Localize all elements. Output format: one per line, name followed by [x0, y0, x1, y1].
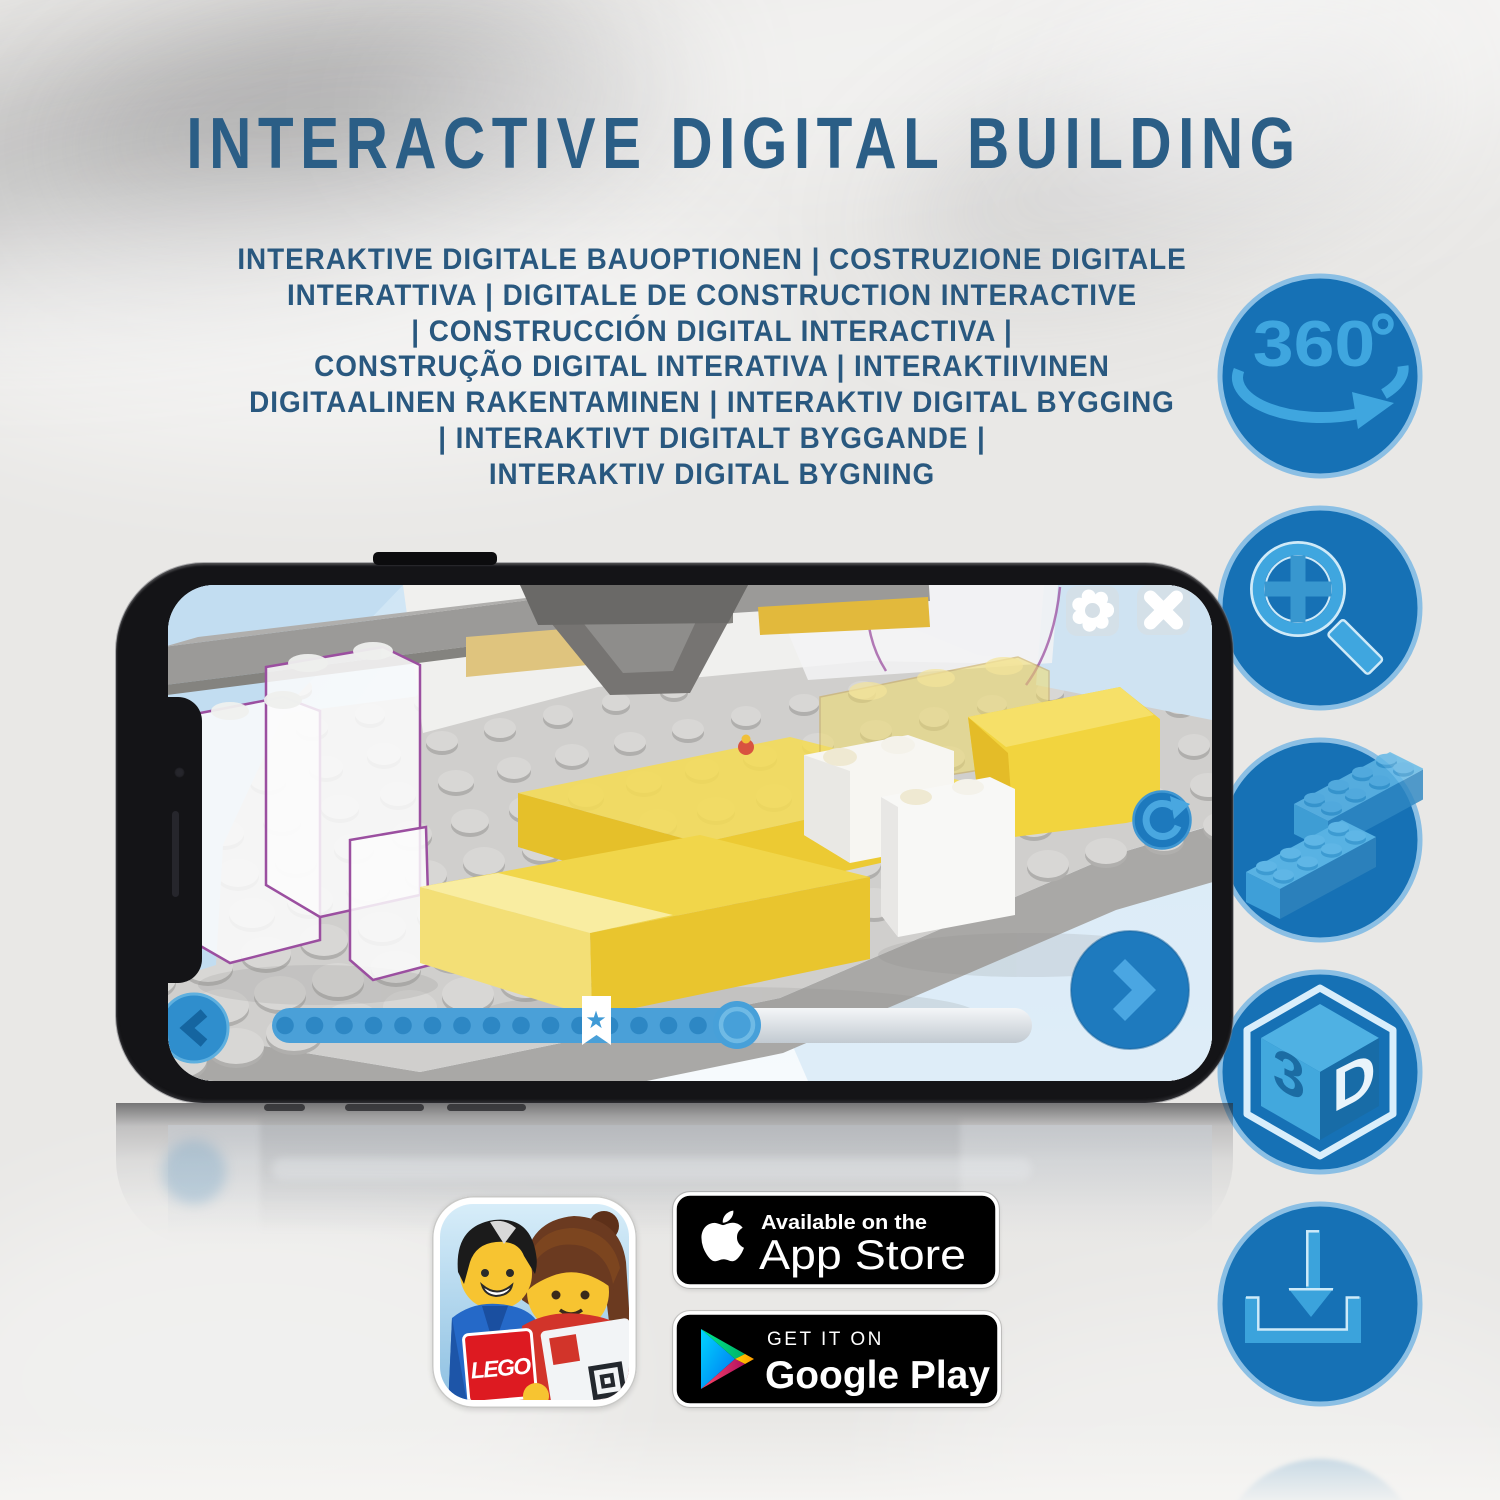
svg-text:App Store: App Store	[759, 1231, 966, 1278]
svg-text:★: ★	[585, 1007, 607, 1034]
svg-text:GET IT ON: GET IT ON	[767, 1329, 884, 1350]
svg-text:Google Play: Google Play	[765, 1354, 990, 1397]
svg-text:360: 360	[1253, 307, 1376, 380]
svg-text:LEGO: LEGO	[470, 1352, 533, 1383]
